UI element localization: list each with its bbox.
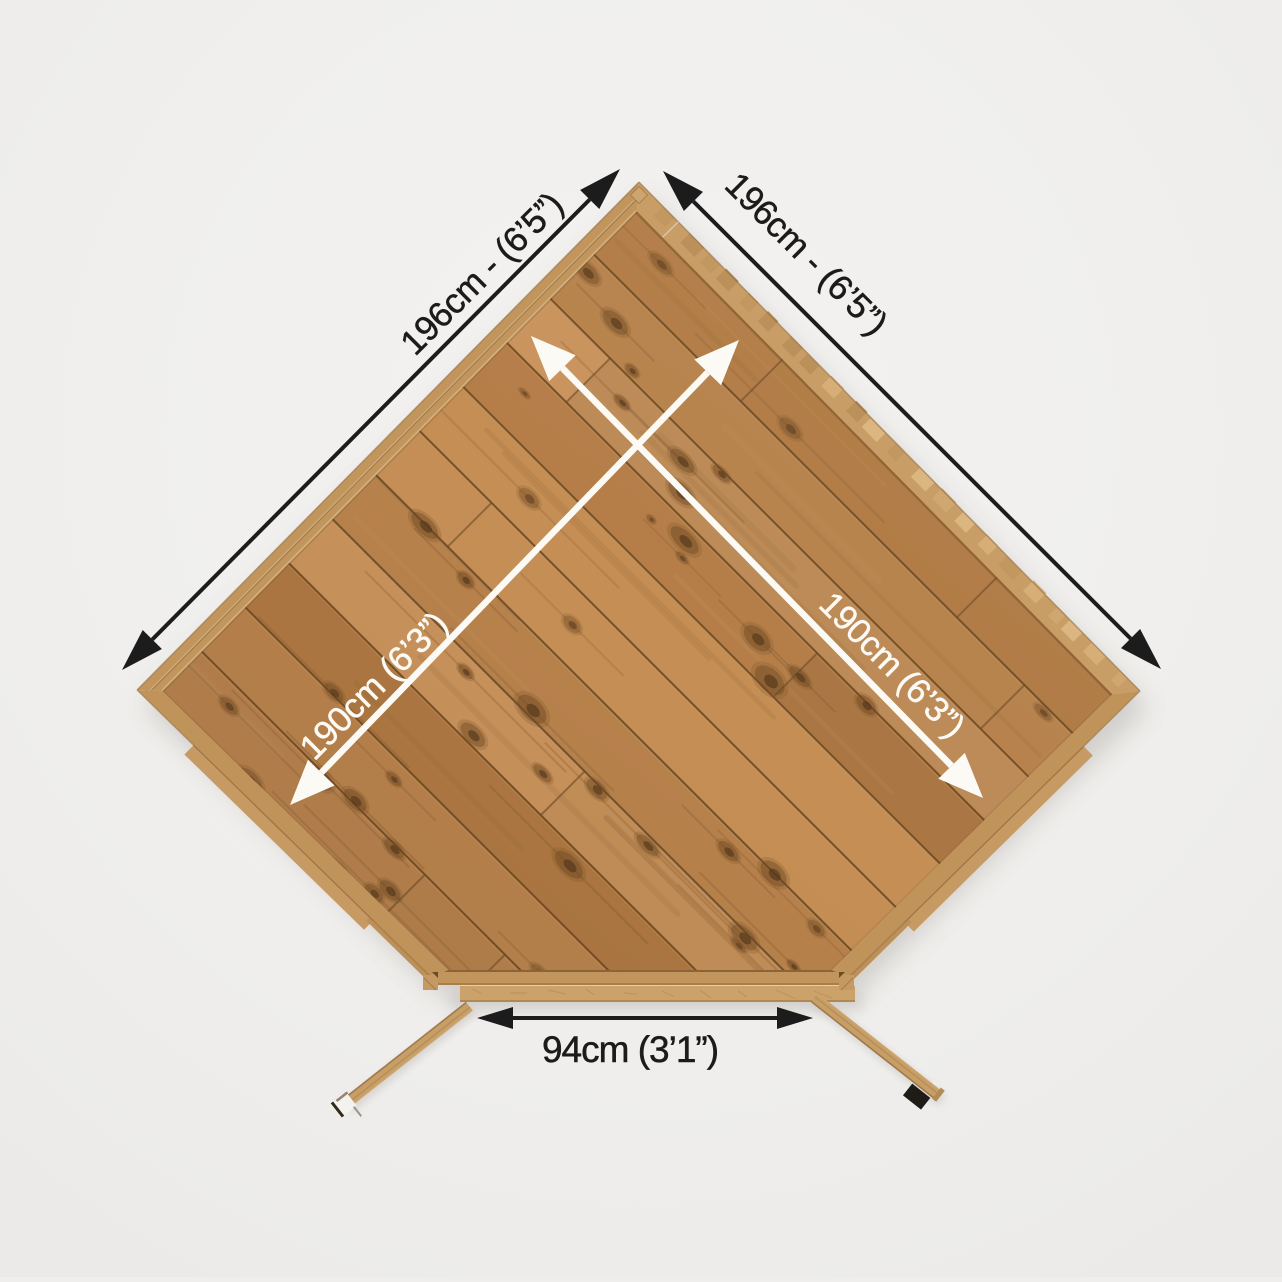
svg-text:94cm (3’1”): 94cm (3’1”) xyxy=(542,1029,718,1070)
